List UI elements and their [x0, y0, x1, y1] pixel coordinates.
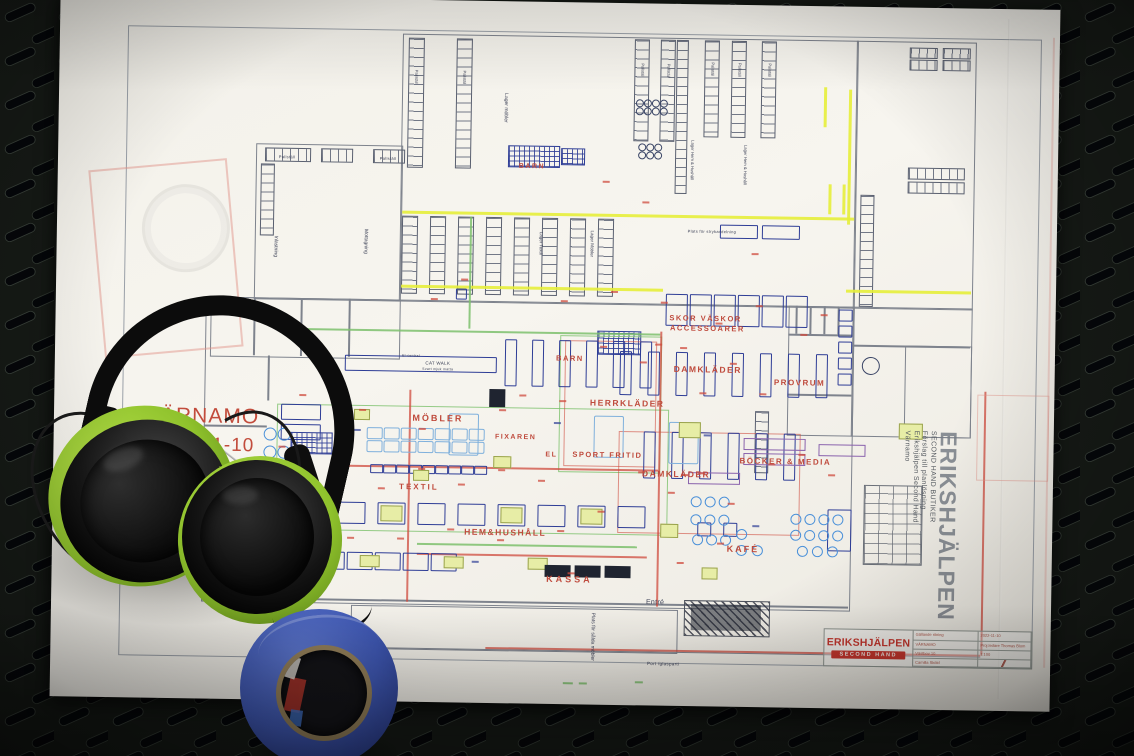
plan-shape [827, 546, 838, 557]
plan-shape [396, 465, 409, 474]
tape-core [276, 645, 372, 741]
plan-shape [498, 469, 505, 471]
plan-shape [762, 225, 800, 240]
plan-label-catwalk_line2: Svart mjuk matta [422, 367, 453, 371]
plan-shape [785, 296, 807, 328]
plan-shape [380, 505, 402, 521]
plan-shape [489, 389, 505, 407]
plan-label-plats_stryk: Plats för strykavdelning [688, 229, 737, 235]
plan-label-pallstall: Pallställ [380, 156, 397, 161]
earcup-right-highlight [222, 486, 258, 504]
plan-shape [419, 428, 426, 430]
plan-label-kafe: KAFÉ [727, 544, 760, 555]
plan-shape [790, 530, 801, 541]
plan-shape [585, 340, 598, 387]
plan-shape [976, 395, 1049, 482]
plan-shape [378, 487, 385, 489]
plan-shape [800, 334, 807, 336]
plan-shape [832, 530, 843, 541]
plan-label-kassa: KASSA [546, 574, 593, 585]
plan-shape [469, 429, 485, 441]
plan-shape [444, 556, 464, 568]
plan-shape [383, 440, 399, 452]
plan-label-port: Port /glasparti [647, 661, 679, 667]
plan-shape [400, 441, 416, 453]
plan-shape [617, 506, 645, 528]
plan-shape [559, 400, 566, 402]
plan-shape [370, 464, 383, 473]
plan-label-lager_mobler: Lager möbler [503, 93, 509, 123]
plan-shape [718, 515, 729, 526]
plan-shape [838, 357, 852, 369]
plan-shape [652, 107, 660, 115]
plan-shape [730, 41, 747, 138]
plan-shape [818, 444, 865, 457]
plan-shape [655, 344, 662, 346]
plan-shape [451, 441, 467, 453]
plan-shape [461, 466, 474, 475]
plan-label-lager_hem1: Lager Hem & Hushåll [690, 140, 696, 180]
plan-shape [434, 441, 450, 453]
plan-shape [458, 483, 465, 485]
plan-shape [468, 442, 484, 454]
plan-label-el_central: El-central [402, 354, 420, 358]
plan-shape [260, 163, 275, 235]
plan-shape [619, 351, 632, 395]
plan-shape [759, 353, 772, 397]
plan-shape [554, 422, 561, 424]
plan-shape [407, 38, 425, 168]
plan-shape [401, 216, 418, 294]
plan-shape [761, 295, 783, 327]
plan-shape [447, 528, 454, 530]
plan-label-el: EL [545, 451, 557, 458]
plan-shape [603, 181, 610, 183]
plan-label-hem_hushall: HEM&HUSHÅLL [464, 527, 546, 538]
plan-shape [838, 373, 852, 385]
plan-shape [431, 298, 438, 300]
plan-shape [504, 339, 517, 386]
plan-shape [818, 530, 829, 541]
photo-stage: BARNBARNMÖBLERTEXTILHEM&HUSHÅLLBELYSNING… [0, 0, 1134, 756]
title-block-logo: ERIKSHJÄLPEN SECOND HAND [824, 629, 914, 666]
plan-shape [815, 354, 828, 398]
plan-shape [908, 182, 965, 195]
plan-label-skor_line2: ACCESSOARER [670, 323, 745, 333]
plan-label-pallstall: Pallställ [462, 71, 467, 85]
plan-shape [413, 470, 429, 481]
plan-label-damklader_lower: DAMKLÄDER [642, 468, 710, 479]
plan-shape [909, 60, 937, 71]
plan-label-pallstall: Pallställ [666, 64, 671, 78]
plan-shape [701, 567, 717, 579]
plan-shape [474, 466, 487, 475]
plan-shape [598, 511, 605, 513]
plan-shape [519, 394, 526, 396]
title-block-table: Gällande ritning 2022-11-10 VÄRNAMO Proj… [913, 631, 1032, 669]
plan-shape [429, 216, 446, 294]
plan-shape [679, 422, 701, 438]
plan-shape [717, 543, 724, 545]
plan-shape [640, 361, 647, 363]
plan-shape [824, 87, 828, 127]
plan-shape [493, 456, 511, 468]
brand-tagline: SECOND HAND [832, 650, 906, 659]
plan-shape [661, 302, 668, 304]
plan-shape [461, 279, 468, 281]
plan-shape [485, 217, 502, 295]
plan-shape [384, 427, 400, 439]
plan-shape [558, 340, 571, 387]
plan-label-inlastning: Inlastning [272, 236, 278, 257]
plan-label-provrum: PROVRUM [774, 378, 826, 388]
plan-shape [435, 465, 448, 474]
plan-label-fixaren: FIXAREN [495, 434, 536, 442]
plan-shape [704, 434, 711, 436]
plan-shape [563, 682, 573, 684]
plan-shape [557, 530, 564, 532]
plan-shape [499, 409, 506, 411]
plan-shape [538, 480, 545, 482]
plan-shape [383, 464, 396, 473]
plan-label-lager_mobler2: Lager Möbler [590, 231, 595, 258]
plan-shape [541, 218, 558, 296]
plan-shape [752, 253, 759, 255]
plan-shape [790, 514, 801, 525]
side-brand: ERIKSHJÄLPEN [934, 431, 960, 589]
plan-shape [647, 351, 660, 395]
plan-shape [397, 538, 404, 540]
plan-shape [457, 503, 485, 525]
plan-shape [821, 314, 828, 316]
plan-shape [500, 507, 522, 523]
plan-shape [472, 561, 479, 563]
plan-shape [910, 48, 938, 59]
plan-shape [728, 503, 735, 505]
plan-shape [675, 40, 689, 194]
plan-shape [943, 48, 971, 59]
plan-shape [401, 428, 417, 440]
plan-label-pallstall: Pallställ [640, 63, 645, 77]
plan-shape [417, 441, 433, 453]
plan-shape [654, 144, 662, 152]
plan-label-pallstall: Pallställ [414, 70, 419, 84]
plan-label-pallstall: Pallställ [710, 62, 715, 76]
title-block: ERIKSHJÄLPEN SECOND HAND Gällande ritnin… [823, 628, 1033, 669]
plan-label-pallstall: Pallställ [737, 63, 742, 77]
plan-shape [418, 468, 425, 470]
plan-shape [579, 682, 587, 684]
tape-core-label-red [284, 677, 307, 714]
plan-shape [611, 291, 618, 293]
plan-shape [804, 530, 815, 541]
plan-label-plats_salda: Plats för sålda möbler [589, 613, 596, 661]
plan-shape [531, 340, 544, 387]
plan-shape [633, 39, 650, 141]
tb-author: Camilla Sköld [913, 659, 978, 668]
plan-shape [798, 454, 805, 456]
plan-shape [497, 539, 504, 541]
plan-shape [660, 524, 678, 538]
plan-label-pallstall: Pallställ [767, 63, 772, 77]
plan-label-sport_fritid: SPORT FRITID [572, 450, 642, 460]
plan-shape [597, 219, 614, 297]
plan-shape [760, 41, 777, 138]
plan-shape [691, 496, 702, 507]
plan-label-mobler: MÖBLER [412, 413, 463, 424]
plan-shape [752, 525, 759, 527]
plan-shape [321, 148, 353, 163]
plan-label-skor_line1: SKOR VÄSKOR [669, 313, 741, 323]
plan-label-herrklader: HERRKLÄDER [590, 398, 665, 409]
plan-label-mottagning: Mottagning [363, 229, 369, 254]
plan-shape [644, 99, 652, 107]
plan-shape [600, 346, 607, 348]
plan-shape [703, 40, 720, 137]
plan-label-catwalk_line1: CAT WALK [425, 360, 450, 365]
plan-label-bocker_media: BÖCKER & MEDIA [739, 456, 831, 466]
plan-shape [660, 108, 668, 116]
plan-label-lager_hem2: Lager Hem & Hushåll [743, 145, 749, 185]
plan-shape [705, 496, 716, 507]
plan-shape [838, 325, 852, 337]
plan-shape [818, 514, 829, 525]
plan-label-barn_warehouse: BARN [519, 163, 545, 170]
plan-shape [659, 40, 676, 142]
plan-shape [756, 305, 763, 307]
tb-diagonal-cell [978, 660, 1031, 669]
plan-shape [417, 503, 445, 525]
plan-shape [787, 354, 800, 398]
plan-label-lager_textil: Lager Textil [539, 232, 544, 255]
plan-shape [435, 428, 451, 440]
plan-shape [636, 99, 644, 107]
plan-shape [677, 562, 684, 564]
plan-shape [942, 60, 970, 71]
plan-shape [832, 514, 843, 525]
side-project-text: ERIKSHJÄLPEN SECOND HAND BUTIKER Förslag… [900, 430, 960, 589]
plan-shape [759, 393, 766, 395]
plan-label-textil: TEXTIL [399, 482, 439, 492]
tape-core-label-blue [289, 709, 303, 727]
plan-shape [839, 309, 853, 321]
plan-shape [418, 428, 434, 440]
plan-shape [455, 38, 473, 168]
plan-shape [635, 681, 643, 683]
plan-shape [699, 392, 706, 394]
plan-shape [537, 505, 565, 527]
plan-shape [636, 107, 644, 115]
plan-shape [744, 438, 806, 451]
plan-shape [644, 107, 652, 115]
plan-shape [680, 347, 687, 349]
plan-shape [691, 604, 761, 631]
plan-shape [838, 341, 852, 353]
plan-shape [604, 566, 630, 578]
plan-label-pallstall: Pallställ [279, 154, 296, 159]
plan-shape [456, 288, 467, 299]
plan-label-damklader_upper: DAMKLÄDER [674, 364, 742, 375]
plan-shape [736, 529, 747, 540]
plan-shape [561, 300, 568, 302]
blue-tape-roll [240, 609, 398, 756]
plan-shape [668, 492, 675, 494]
plan-shape [513, 217, 530, 295]
brand-name: ERIKSHJÄLPEN [827, 636, 911, 649]
ear-defenders [40, 288, 370, 628]
plan-label-entre: Entré [646, 599, 664, 606]
plan-shape [797, 546, 808, 557]
plan-shape [561, 148, 585, 165]
plan-shape [812, 546, 823, 557]
plan-shape [842, 184, 845, 214]
plan-shape [908, 168, 965, 181]
plan-shape [660, 100, 668, 108]
plan-shape [448, 465, 461, 474]
plan-shape [828, 474, 835, 476]
plan-shape [652, 99, 660, 107]
plan-shape [642, 201, 649, 203]
plan-shape [569, 218, 586, 296]
plan-shape [403, 553, 429, 571]
plan-shape [828, 184, 831, 214]
plan-shape [452, 428, 468, 440]
plan-shape [254, 143, 403, 301]
plan-shape [804, 514, 815, 525]
plan-label-barn_store: BARN [556, 354, 584, 363]
